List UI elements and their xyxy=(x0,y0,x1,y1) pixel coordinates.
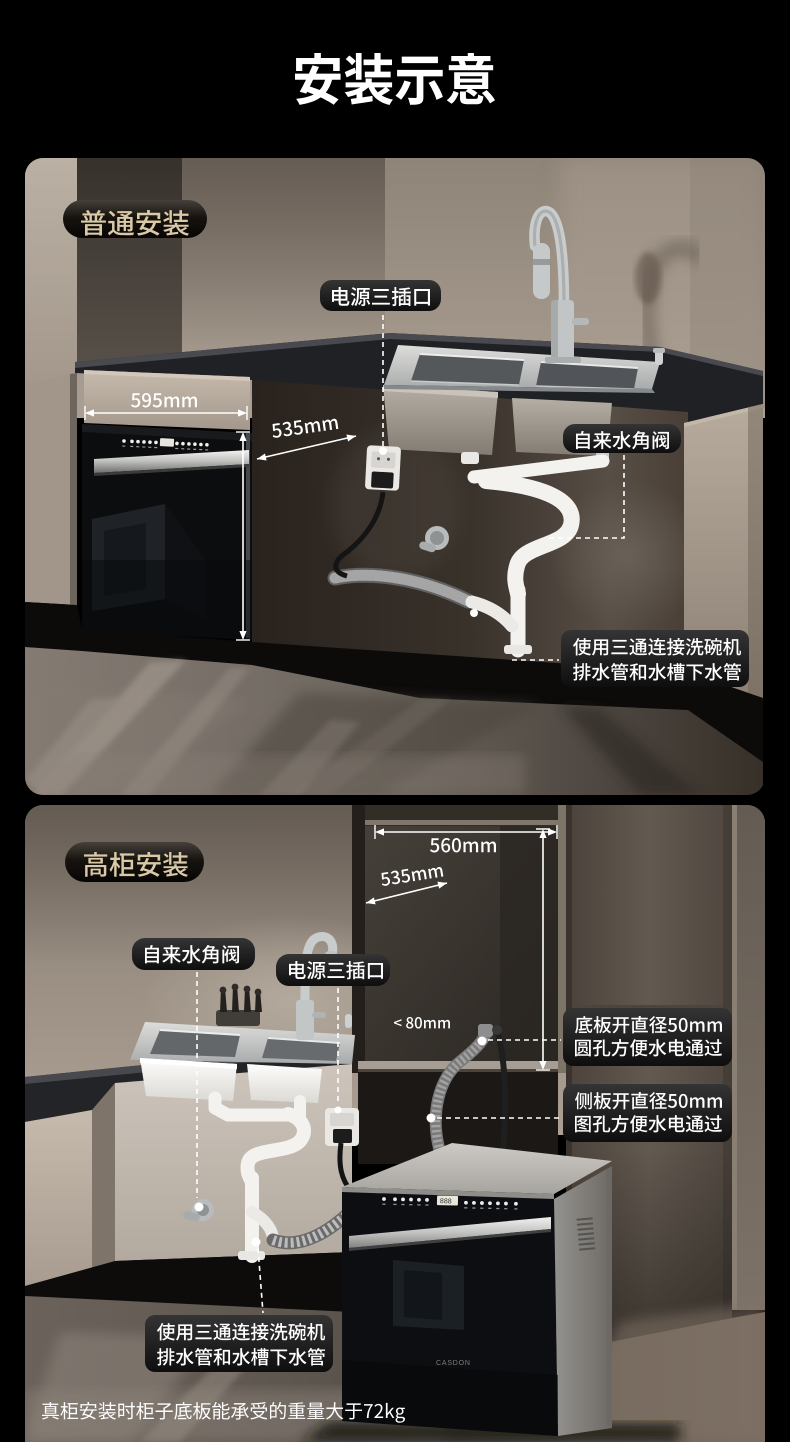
svg-text:CASDON: CASDON xyxy=(436,1360,471,1367)
svg-text:888: 888 xyxy=(440,1198,452,1205)
